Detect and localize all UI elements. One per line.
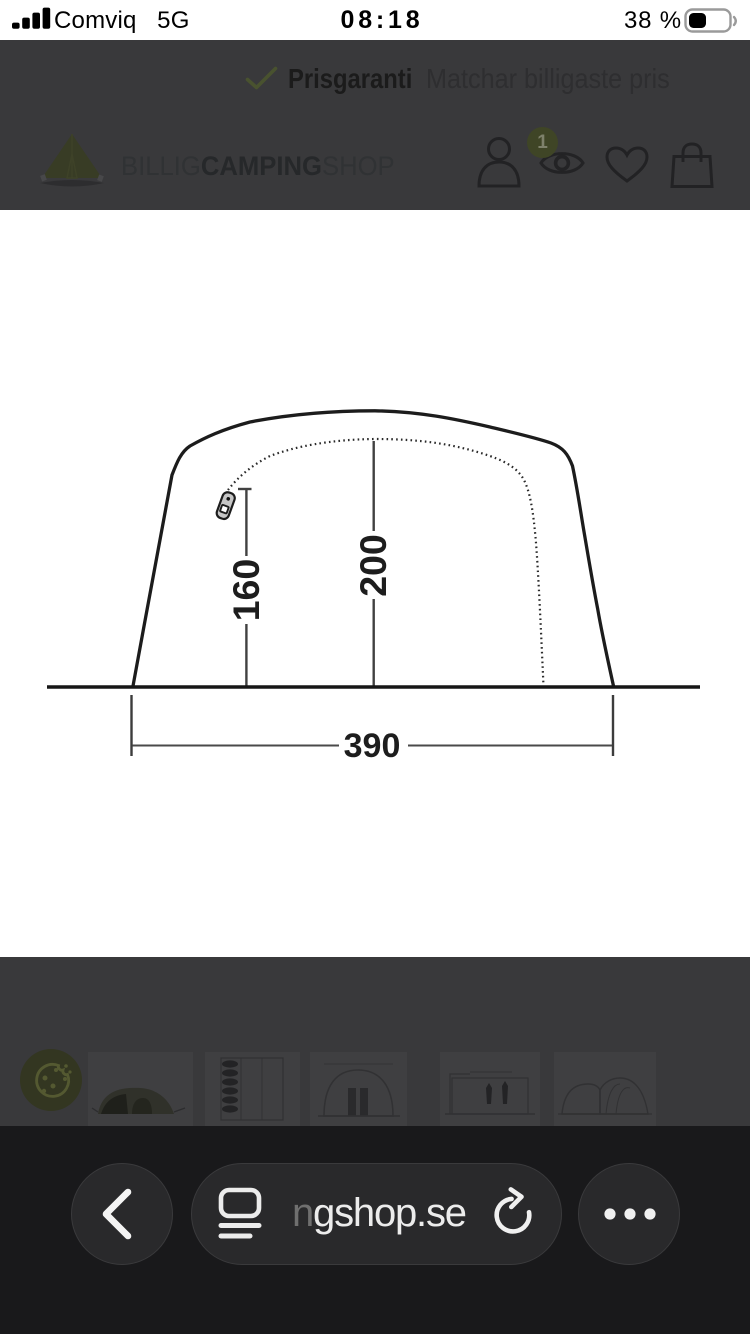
svg-text:390: 390: [344, 727, 401, 765]
svg-text:160: 160: [225, 559, 267, 622]
svg-text:200: 200: [352, 534, 394, 597]
